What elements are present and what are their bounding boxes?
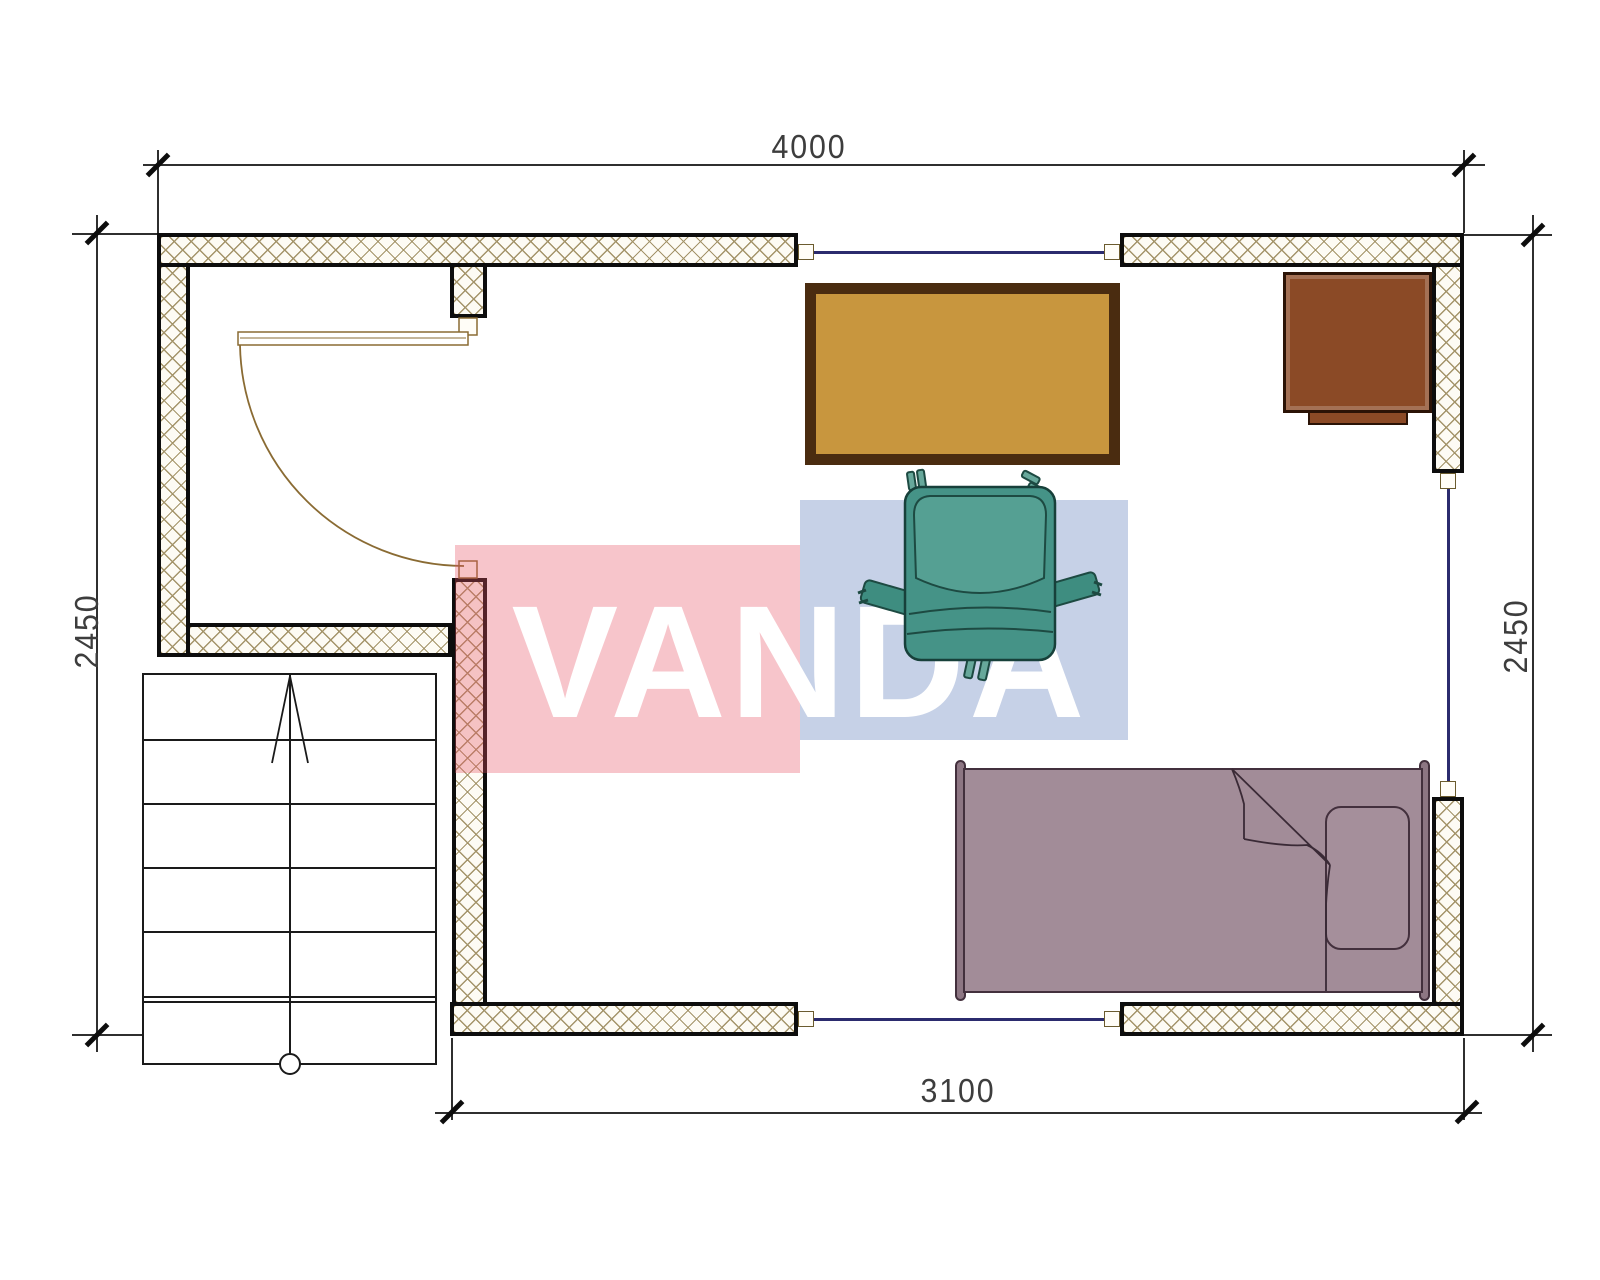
floor-plan-canvas: 4000 2450 2450 3100: [0, 0, 1600, 1280]
dimension-label-right: 2450: [1499, 562, 1533, 709]
dimension-label-left: 2450: [70, 557, 104, 704]
window-top-line: [814, 251, 1104, 254]
window-jamb: [1104, 244, 1120, 260]
extension-line-right-bottom: [1464, 1034, 1552, 1036]
window-bottom-line: [814, 1018, 1104, 1021]
window-jamb: [798, 244, 814, 260]
extension-line-left-top: [72, 233, 160, 235]
stair-centerline: [289, 673, 291, 1054]
dimension-label-top: 4000: [735, 130, 882, 164]
wall-bottom-left: [450, 1002, 798, 1036]
wall-stub-top: [450, 267, 487, 318]
window-jamb: [798, 1011, 814, 1027]
window-right-line: [1447, 489, 1450, 781]
window-jamb: [1104, 1011, 1120, 1027]
wall-left-bottom: [190, 623, 452, 657]
cabinet-drawer: [1308, 413, 1408, 425]
door-swing-arc: [240, 345, 464, 566]
bed-pillow: [1325, 806, 1410, 950]
extension-line-right-top: [1464, 234, 1552, 236]
dimension-line-bottom: [435, 1112, 1482, 1114]
door-icon: [238, 318, 477, 578]
wall-right-upper: [1432, 267, 1464, 473]
table-icon: [805, 283, 1120, 465]
wall-bottom-right: [1120, 1002, 1464, 1036]
wall-top-left: [157, 233, 798, 267]
window-jamb: [1440, 473, 1456, 489]
cabinet-icon: [1283, 272, 1432, 413]
wall-top-right: [1120, 233, 1464, 267]
window-jamb: [1440, 781, 1456, 797]
stair-start-circle: [279, 1053, 301, 1075]
extension-line-bottom-right: [1463, 1038, 1465, 1120]
dimension-label-bottom: 3100: [884, 1074, 1031, 1108]
watermark-text: VANDA: [480, 577, 1120, 747]
wall-right-lower: [1432, 797, 1464, 1002]
wall-left: [157, 267, 190, 657]
